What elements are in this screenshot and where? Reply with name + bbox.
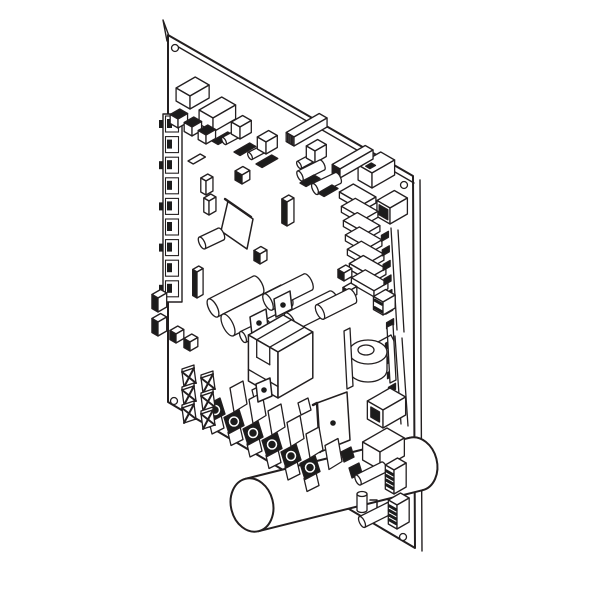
edge-connector-strip-left-shape <box>167 160 172 169</box>
cap-electrolytic-1 <box>282 195 294 226</box>
edge-connector-strip-left-shape <box>159 120 163 128</box>
cap-electrolytic-2-shape <box>197 269 203 299</box>
cap-box-1 <box>201 174 213 195</box>
side-terminal-2 <box>152 314 167 337</box>
edge-connector-strip-left-shape <box>159 202 163 210</box>
mount-tab-2-shape <box>256 320 262 326</box>
cap-electrolytic-1-shape <box>282 199 287 226</box>
cap-box-2-shape <box>204 198 209 215</box>
edge-connector-strip-left-shape <box>167 284 172 293</box>
power-transistor-plate-shape <box>330 420 336 426</box>
edge-connector-strip-left-shape <box>159 161 163 169</box>
mount-tab-3-shape <box>261 387 267 393</box>
edge-connector-strip-left-shape <box>159 244 163 252</box>
edge-connector-strip-left-shape <box>167 263 172 272</box>
circuit-board-panel-shape <box>401 182 408 189</box>
toroid-inductor-shape <box>358 345 374 355</box>
edge-connector-strip-left-shape <box>167 181 172 190</box>
standoff-cyl <box>357 492 367 513</box>
cap-box-2-shape <box>209 197 216 215</box>
mount-tab-1-shape <box>280 302 286 308</box>
cap-electrolytic-1-shape <box>287 198 294 226</box>
spade-terminal-6 <box>201 407 215 429</box>
cap-box-2 <box>204 194 216 215</box>
circuit-board-panel-shape <box>172 45 179 52</box>
spade-terminal-5 <box>182 401 196 423</box>
standoff-cyl-shape <box>357 492 367 497</box>
cap-box-1-shape <box>206 177 213 195</box>
side-terminal-1 <box>152 290 167 313</box>
circuit-board-panel-shape <box>420 180 422 551</box>
cap-electrolytic-2-shape <box>193 270 197 299</box>
edge-connector-strip-left-shape <box>167 140 172 149</box>
edge-connector-strip-left-shape <box>167 222 172 231</box>
side-terminal-1-shape <box>152 295 158 313</box>
side-terminal-2-shape <box>152 319 158 337</box>
cap-box-1-shape <box>201 178 206 195</box>
ribbon-connector-2 <box>388 493 409 529</box>
pcb-line-drawing <box>0 0 600 600</box>
ribbon-connector-1 <box>385 458 406 494</box>
cap-electrolytic-2 <box>193 266 203 298</box>
circuit-board-panel-shape <box>400 534 407 541</box>
smd-cube-1 <box>235 167 250 185</box>
edge-connector-strip-left-shape <box>167 243 172 252</box>
figure-canvas <box>0 0 600 600</box>
smd-cube-4 <box>254 247 267 265</box>
edge-connector-strip-left-shape <box>167 201 172 210</box>
edge-connector-strip-left <box>159 114 182 302</box>
circuit-board-panel-shape <box>171 398 178 405</box>
